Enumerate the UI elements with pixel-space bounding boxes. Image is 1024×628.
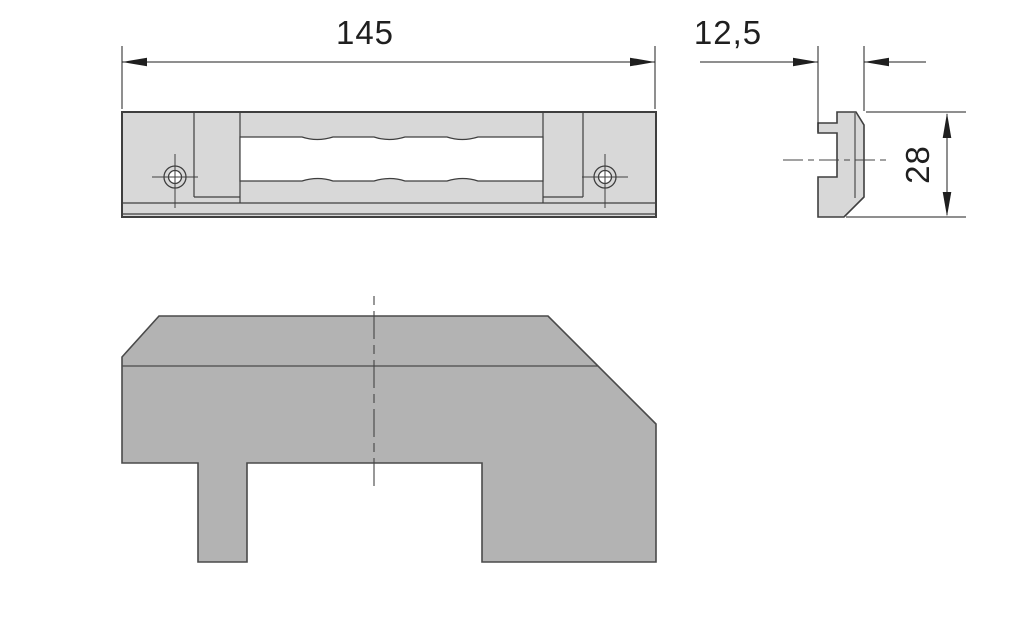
dimension-width: 145 — [122, 14, 655, 109]
dimension-width-label: 145 — [336, 14, 394, 51]
front-view — [122, 112, 656, 217]
arrowhead-bottom — [943, 192, 952, 217]
dimension-height-label: 28 — [899, 145, 936, 184]
latch-window — [240, 137, 543, 181]
bottom-view — [122, 296, 656, 562]
technical-drawing-canvas: 145 12,5 28 — [0, 0, 1024, 628]
dimension-thickness: 12,5 — [694, 14, 926, 132]
bottom-outline — [122, 316, 656, 562]
arrowhead-left — [122, 58, 147, 67]
arrowhead-right — [630, 58, 655, 67]
profile-outline — [818, 112, 864, 217]
arrowhead-left — [793, 58, 818, 67]
dimension-thickness-label: 12,5 — [694, 14, 762, 51]
arrowhead-top — [943, 113, 952, 138]
technical-drawing-page: 145 12,5 28 — [0, 0, 1024, 628]
side-profile-view — [783, 112, 888, 217]
arrowhead-right — [864, 58, 889, 67]
